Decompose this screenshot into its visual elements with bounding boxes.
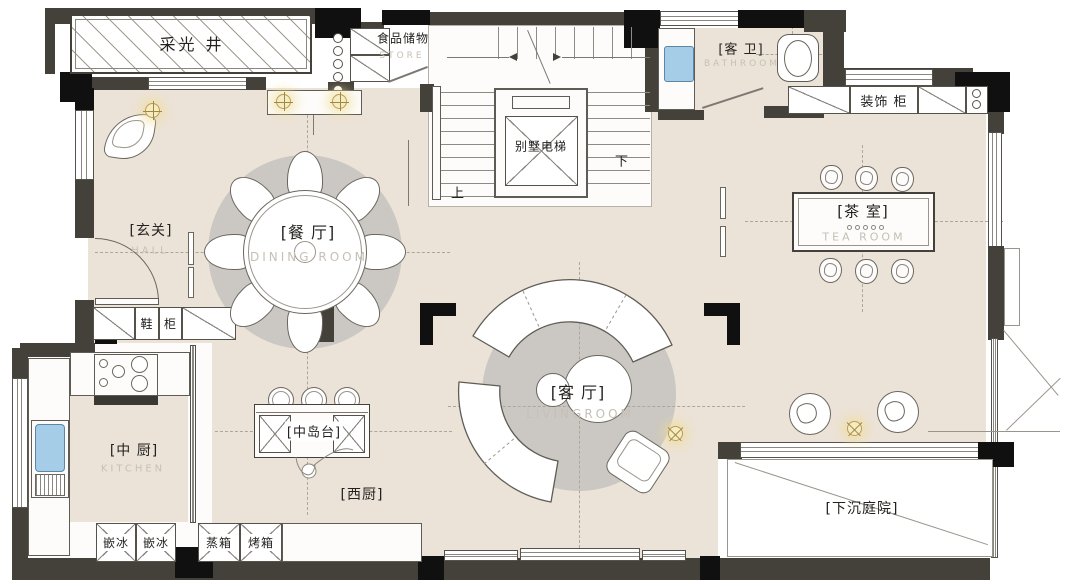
label-hall-en: HALL <box>131 246 169 257</box>
label-bathroom: [客 卫] <box>718 39 763 58</box>
window <box>660 11 740 26</box>
label-living: [客 厅] <box>551 379 606 403</box>
stair-handrail <box>432 86 441 200</box>
appliance-label: 烤箱 <box>247 534 275 551</box>
wall-segment <box>658 110 704 120</box>
appliance-cabinet: 烤箱 <box>240 523 282 562</box>
column <box>420 303 433 345</box>
label-bathroom-en: BATHROOM <box>704 59 780 69</box>
elevator-panel <box>512 96 570 109</box>
label-tea-room-en: TEA ROOM <box>822 231 905 244</box>
living-screen <box>720 187 726 219</box>
wine-rack <box>333 33 343 95</box>
label-west-kitchen: [西厨] <box>341 484 384 504</box>
stair-treads <box>498 27 650 59</box>
wall-segment <box>430 12 626 25</box>
table-lamp-icon <box>276 94 291 109</box>
window <box>642 550 686 561</box>
label-hall: [玄关] <box>130 220 173 240</box>
wall-segment <box>75 180 94 238</box>
kitchen-divider <box>190 345 196 523</box>
toilet-bowl <box>784 40 812 77</box>
window <box>148 77 248 90</box>
round-chair <box>789 393 831 435</box>
cabinet-cell <box>918 86 966 114</box>
window <box>12 378 28 508</box>
burner <box>99 359 108 368</box>
window <box>520 548 640 561</box>
drainboard <box>35 474 65 496</box>
cabinet-cell <box>788 86 850 114</box>
label-light-well: 采光 井 <box>159 31 224 55</box>
stair-direction-line <box>447 57 509 58</box>
window <box>444 550 518 561</box>
kitchen-sink <box>35 424 65 472</box>
stair-treads <box>588 92 650 196</box>
burner <box>99 378 108 387</box>
label-store-en: STORE <box>379 51 424 61</box>
burner <box>112 365 125 378</box>
appliance-cabinet: 嵌冰 <box>136 523 176 562</box>
appliance-label: 蒸箱 <box>205 534 233 551</box>
wall-segment <box>988 110 1004 134</box>
floor-plan: 装饰 柜 鞋 柜 <box>0 0 1080 586</box>
label-island: [中岛台] <box>285 422 343 441</box>
stair-treads <box>440 92 496 202</box>
column <box>700 556 720 580</box>
label-tea-room: [茶 室] <box>837 201 888 222</box>
shoe-cabinet-cell <box>182 307 236 340</box>
wall-segment <box>718 442 742 459</box>
wall-segment <box>45 8 55 74</box>
entry-door-leaf <box>95 298 159 305</box>
arrow-left-icon <box>509 53 517 61</box>
label-living-en: LIVINGROOM <box>526 407 634 421</box>
pantry-door <box>388 66 428 83</box>
column <box>738 10 804 28</box>
tea-stool <box>820 165 843 190</box>
window <box>740 442 980 458</box>
shoe-cabinet-cell <box>93 307 135 340</box>
label-kitchen-en: KITCHEN <box>101 464 165 475</box>
stair-direction-line <box>562 57 650 58</box>
burner <box>131 375 148 392</box>
appliance-cabinet: 蒸箱 <box>198 523 240 562</box>
window <box>845 69 933 86</box>
ceiling-lamp-icon <box>145 103 160 118</box>
label-store: 食品储物 <box>377 30 429 47</box>
label-courtyard: [下沉庭院] <box>826 498 899 518</box>
appliance-cabinet: 嵌冰 <box>96 523 136 562</box>
deco-cabinet-label-cell: 装饰 柜 <box>850 86 918 114</box>
console-centerline <box>313 115 314 135</box>
table-lamp-icon <box>332 94 347 109</box>
wall-segment <box>988 246 1004 328</box>
round-chair <box>877 391 919 433</box>
column <box>727 303 740 345</box>
appliance-label: 嵌冰 <box>142 534 170 551</box>
label-stairs-up: 上 <box>451 183 465 202</box>
stove-base <box>94 396 158 405</box>
cabinet-knobs <box>972 89 981 109</box>
hall-screen <box>188 232 194 265</box>
label-elevator: 别墅电梯 <box>515 138 567 155</box>
column <box>75 88 94 110</box>
west-kitchen-counter <box>282 523 422 562</box>
window <box>75 110 94 180</box>
label-stairs-down: 下 <box>615 151 629 170</box>
wall-segment <box>75 300 94 344</box>
exterior-stair-line <box>1006 378 1061 431</box>
label-dining: [餐 厅] <box>281 219 336 243</box>
island-edge-line <box>256 412 368 413</box>
tea-stool <box>819 258 842 283</box>
bathroom-sink <box>664 46 694 82</box>
tea-stool <box>891 167 914 192</box>
exterior-pier <box>1004 248 1020 326</box>
exterior-terrace-line <box>928 431 1060 432</box>
wall-segment <box>90 77 150 90</box>
tea-stool <box>855 166 878 191</box>
wall-segment <box>246 77 266 90</box>
glass-wall <box>991 338 998 444</box>
burner <box>131 356 148 373</box>
shoe-cabinet-label-cell: 柜 <box>159 307 182 340</box>
shoe-cabinet-label-cell: 鞋 <box>135 307 159 340</box>
armchair-seat <box>614 437 663 485</box>
appliance-label: 嵌冰 <box>102 534 130 551</box>
living-screen <box>720 226 726 257</box>
arrow-right-icon <box>553 53 561 61</box>
tea-stool <box>891 259 914 284</box>
label-kitchen: [中 厨] <box>110 440 158 460</box>
window <box>988 132 1002 248</box>
stair-boundary <box>408 140 409 206</box>
column <box>382 10 430 25</box>
label-dining-en: DINING ROOM <box>250 250 368 264</box>
hall-screen <box>188 267 194 298</box>
tea-cups <box>847 225 884 230</box>
tea-stool <box>855 259 878 284</box>
